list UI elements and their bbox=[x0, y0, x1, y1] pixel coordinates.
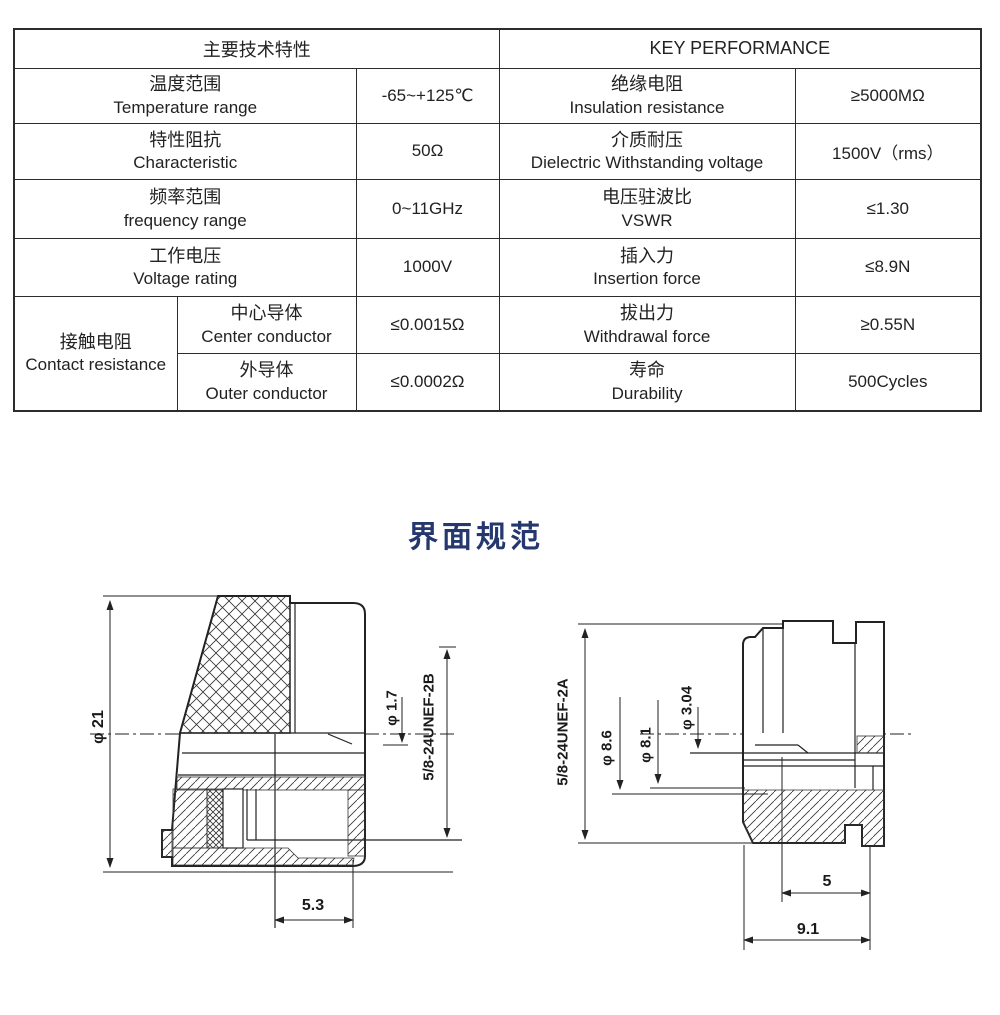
param-label: 绝缘电阻 Insulation resistance bbox=[499, 68, 795, 123]
param-label: 电压驻波比 VSWR bbox=[499, 179, 795, 238]
table-row: 温度范围 Temperature range -65~+125℃ 绝缘电阻 In… bbox=[14, 68, 981, 123]
param-value: ≤0.0002Ω bbox=[356, 353, 499, 411]
dim-thread-2a: 5/8-24UNEF-2A bbox=[555, 678, 572, 786]
header-right: KEY PERFORMANCE bbox=[499, 29, 981, 68]
datasheet-page: { "header": { "left": "主要技术特性", "right":… bbox=[0, 0, 1000, 1015]
right-drawing bbox=[540, 585, 960, 980]
param-value: ≥5000MΩ bbox=[795, 68, 981, 123]
param-label: 寿命 Durability bbox=[499, 353, 795, 411]
dim-dia-81: φ 8.1 bbox=[638, 727, 655, 763]
table-row: 频率范围 frequency range 0~11GHz 电压驻波比 VSWR … bbox=[14, 179, 981, 238]
param-value: ≤8.9N bbox=[795, 238, 981, 296]
param-value: 1500V（rms） bbox=[795, 123, 981, 179]
spec-table: 主要技术特性 KEY PERFORMANCE 温度范围 Temperature … bbox=[13, 28, 982, 412]
param-value: ≤1.30 bbox=[795, 179, 981, 238]
dim-dia-304: φ 3.04 bbox=[679, 686, 696, 730]
table-row: 接触电阻 Contact resistance 中心导体 Center cond… bbox=[14, 296, 981, 353]
section-title: 界面规范 bbox=[408, 512, 544, 556]
table-header-row: 主要技术特性 KEY PERFORMANCE bbox=[14, 29, 981, 68]
param-label: 频率范围 frequency range bbox=[14, 179, 356, 238]
dim-body-dia: φ 21 bbox=[90, 710, 108, 744]
param-label: 介质耐压 Dielectric Withstanding voltage bbox=[499, 123, 795, 179]
param-value: 0~11GHz bbox=[356, 179, 499, 238]
dim-pin-dia: φ 1.7 bbox=[384, 690, 401, 726]
dim-depth-53: 5.3 bbox=[302, 897, 324, 915]
param-label: 插入力 Insertion force bbox=[499, 238, 795, 296]
param-value: -65~+125℃ bbox=[356, 68, 499, 123]
param-label: 特性阻抗 Characteristic bbox=[14, 123, 356, 179]
dim-len-91: 9.1 bbox=[797, 921, 819, 939]
dim-thread-2b: 5/8-24UNEF-2B bbox=[421, 673, 438, 781]
param-value: 1000V bbox=[356, 238, 499, 296]
header-left: 主要技术特性 bbox=[14, 29, 499, 68]
param-value: 50Ω bbox=[356, 123, 499, 179]
param-value: ≥0.55N bbox=[795, 296, 981, 353]
param-label: 温度范围 Temperature range bbox=[14, 68, 356, 123]
param-value: 500Cycles bbox=[795, 353, 981, 411]
table-row: 工作电压 Voltage rating 1000V 插入力 Insertion … bbox=[14, 238, 981, 296]
param-sublabel: 中心导体 Center conductor bbox=[177, 296, 356, 353]
table-row: 特性阻抗 Characteristic 50Ω 介质耐压 Dielectric … bbox=[14, 123, 981, 179]
param-label: 工作电压 Voltage rating bbox=[14, 238, 356, 296]
dim-dia-86: φ 8.6 bbox=[599, 730, 616, 766]
param-value: ≤0.0015Ω bbox=[356, 296, 499, 353]
contact-resistance-label: 接触电阻 Contact resistance bbox=[14, 296, 177, 411]
param-sublabel: 外导体 Outer conductor bbox=[177, 353, 356, 411]
param-label: 拔出力 Withdrawal force bbox=[499, 296, 795, 353]
dim-len-5: 5 bbox=[823, 873, 832, 891]
left-drawing bbox=[60, 575, 480, 955]
